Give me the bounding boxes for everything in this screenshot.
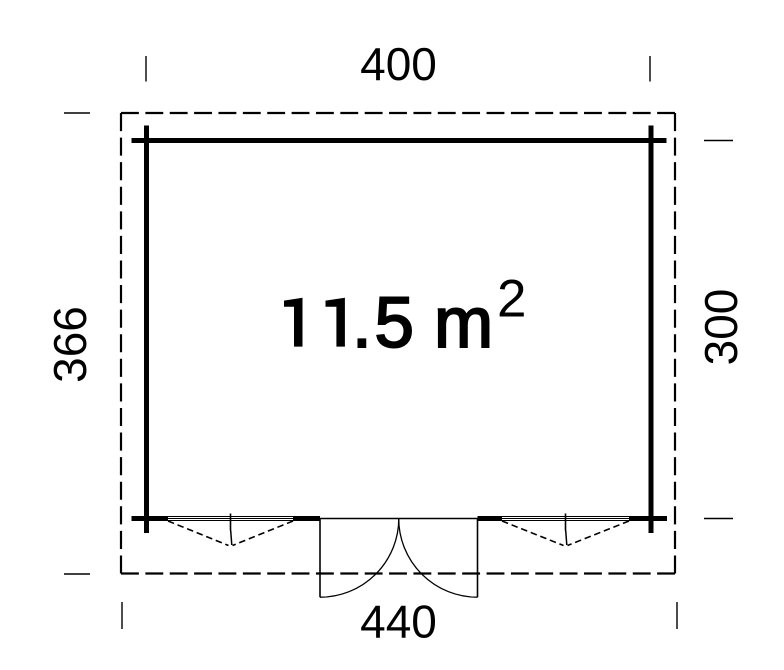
svg-text:.: .	[352, 284, 372, 363]
svg-text:5: 5	[375, 284, 415, 363]
svg-text:366: 366	[44, 306, 96, 383]
svg-text:m: m	[434, 284, 493, 363]
svg-text:2: 2	[497, 270, 526, 329]
svg-text:300: 300	[695, 289, 747, 366]
svg-text:440: 440	[360, 596, 437, 648]
svg-text:400: 400	[360, 38, 437, 90]
